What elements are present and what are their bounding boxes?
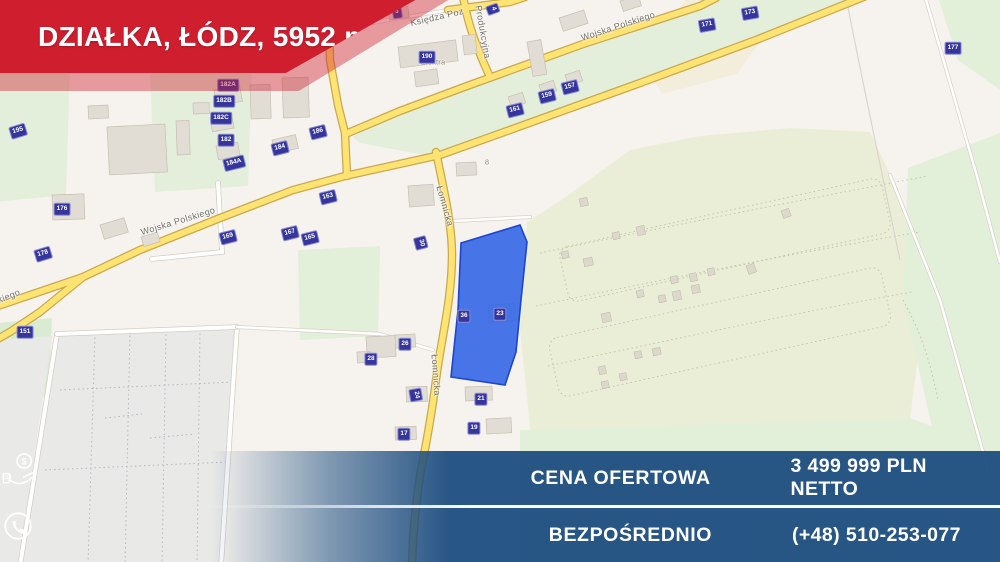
house-number-badge: 36 bbox=[457, 310, 470, 323]
grass-area bbox=[298, 246, 380, 340]
house-number-badge: 24 bbox=[409, 387, 424, 402]
house-number-badge: 182C bbox=[210, 112, 232, 125]
offer-price-row: CENA OFERTOWA $ 3 499 999 PLN NETTO bbox=[0, 451, 1000, 505]
phone-number: (+48) 510-253-077 bbox=[792, 524, 961, 547]
house-number-badge: 176 bbox=[54, 203, 71, 216]
poi-label: 8 bbox=[485, 158, 489, 167]
real-estate-promo-image: Wojska PolskiegoWojska PolskiegoWojska P… bbox=[0, 0, 1000, 562]
price-value: 3 499 999 PLN NETTO bbox=[790, 455, 1000, 501]
house-number-badge: 182B bbox=[213, 95, 235, 108]
page-title: DZIAŁKA, ŁÓDZ, 5952 m2 bbox=[38, 21, 379, 53]
offer-banner: CENA OFERTOWA $ 3 499 999 PLN NETTO BEZP… bbox=[0, 451, 1000, 562]
contact-label: BEZPOŚREDNIO bbox=[0, 524, 712, 547]
highlighted-plot-polygon bbox=[451, 225, 527, 385]
house-number-badge: 23 bbox=[493, 308, 506, 321]
house-number-badge: 28 bbox=[364, 353, 377, 366]
house-number-badge: 182 bbox=[218, 134, 235, 147]
house-number-badge: 21 bbox=[474, 393, 487, 406]
price-label: CENA OFERTOWA bbox=[0, 467, 711, 490]
house-number-badge: 177 bbox=[945, 42, 962, 55]
house-number-badge: 26 bbox=[398, 338, 411, 351]
svg-text:$: $ bbox=[22, 456, 27, 466]
offer-contact-row: BEZPOŚREDNIO (+48) 510-253-077 bbox=[0, 508, 1000, 562]
house-number-badge: 190 bbox=[419, 51, 436, 64]
allotments-area bbox=[520, 128, 930, 449]
house-number-badge: 151 bbox=[17, 326, 34, 339]
grass-area bbox=[903, 133, 1000, 462]
house-number-badge: 17 bbox=[397, 428, 410, 441]
house-number-badge: 19 bbox=[467, 422, 480, 435]
